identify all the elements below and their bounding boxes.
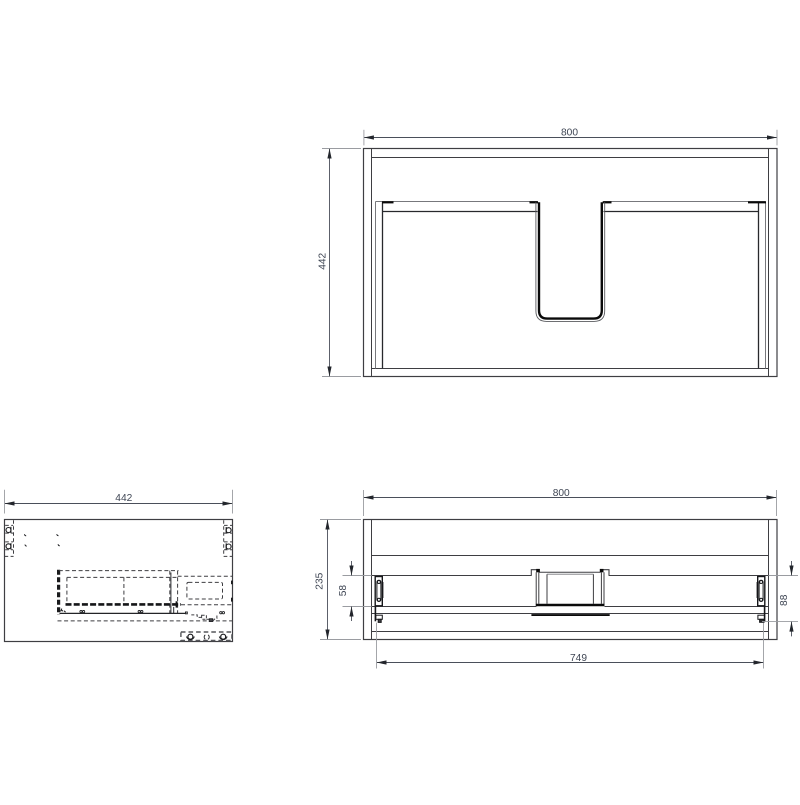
svg-text:442: 442 bbox=[115, 493, 132, 504]
svg-text:58: 58 bbox=[338, 585, 349, 597]
svg-text:235: 235 bbox=[315, 572, 326, 589]
svg-text:800: 800 bbox=[561, 128, 578, 139]
svg-text:442: 442 bbox=[318, 252, 329, 269]
svg-text:800: 800 bbox=[553, 488, 570, 499]
svg-text:749: 749 bbox=[570, 653, 587, 664]
svg-text:88: 88 bbox=[779, 594, 790, 606]
